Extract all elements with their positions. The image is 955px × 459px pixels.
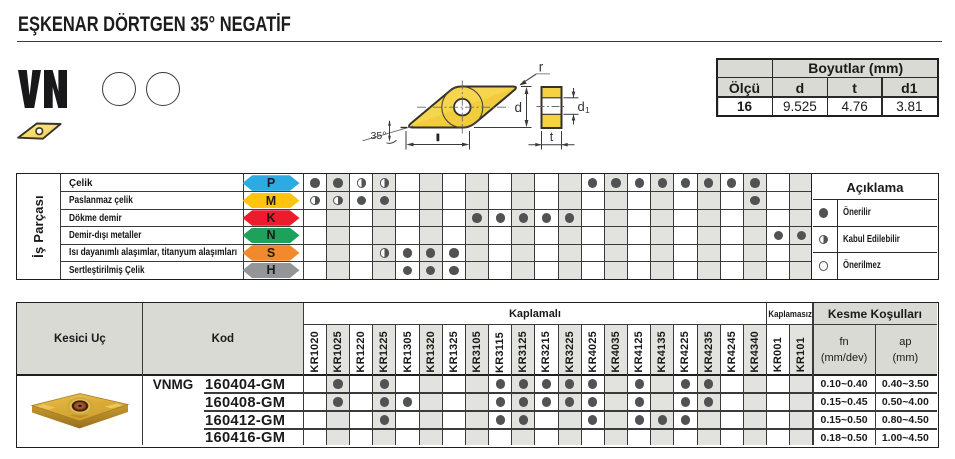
svg-text:r: r	[539, 60, 544, 75]
svg-text:1: 1	[585, 105, 590, 115]
svg-text:d: d	[578, 99, 585, 114]
svg-text:d: d	[514, 100, 522, 115]
svg-text:t: t	[550, 130, 554, 144]
svg-text:35°: 35°	[371, 130, 387, 142]
